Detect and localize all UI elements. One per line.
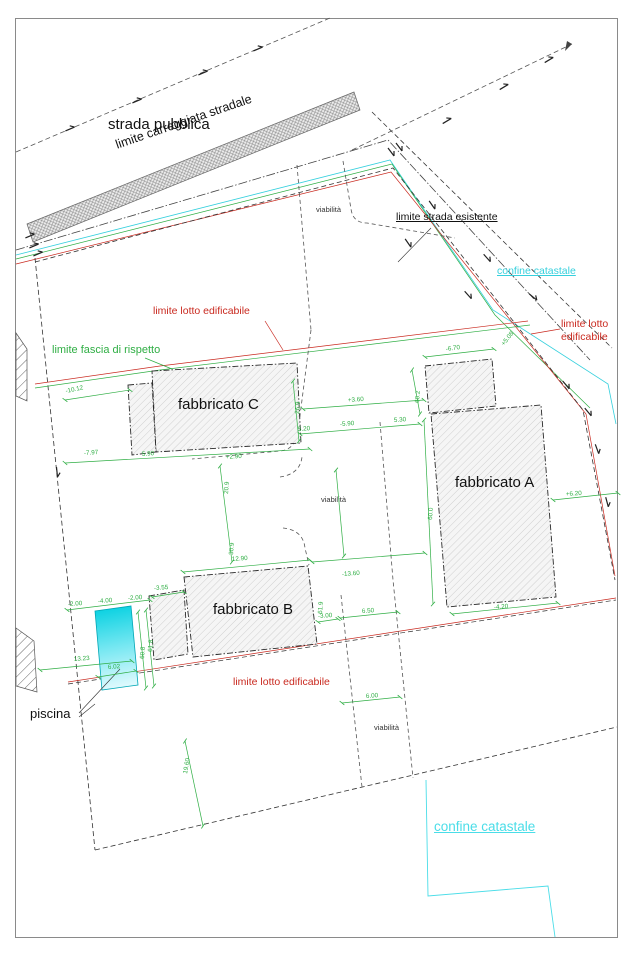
dimension-value: 5.90 bbox=[142, 450, 155, 458]
dimension-value: 60.8 bbox=[139, 646, 147, 659]
confine-catastale-line-bottom bbox=[426, 780, 555, 937]
survey-arrowhead bbox=[565, 41, 572, 51]
pool-label: piscina bbox=[30, 706, 70, 721]
dimension-value: 19.60 bbox=[182, 757, 192, 774]
buildable-lot-limit-label-right: limite lotto edificabile bbox=[561, 318, 608, 344]
dimension-value: -7.97 bbox=[84, 449, 99, 457]
road-centerline-dashdot bbox=[16, 140, 590, 360]
dimension-value: 6.50 bbox=[362, 607, 375, 615]
respect-strip-limit-label: limite fascia di rispetto bbox=[52, 344, 160, 356]
dimension-value: -4.20 bbox=[494, 603, 509, 611]
buildable-lot-limit-label-bottom: limite lotto edificabile bbox=[233, 676, 330, 688]
dimension-value: -2.00 bbox=[128, 594, 143, 602]
building-fabbricato-a bbox=[431, 405, 556, 607]
plaza-corner-sw bbox=[283, 528, 309, 565]
south-drive-west-edge bbox=[341, 595, 362, 787]
buildable-lot-limit-label-right-line2: edificabile bbox=[561, 331, 608, 344]
leader-strada-esistente bbox=[398, 228, 431, 262]
dimension-value: 60.2 bbox=[414, 390, 422, 403]
dimension-value: 60.0 bbox=[427, 507, 435, 520]
dimension-value: 6.00 bbox=[366, 692, 379, 700]
viabilita-label-bottom: viabilità bbox=[374, 723, 400, 732]
viabilita-label-top: viabilità bbox=[316, 205, 342, 214]
dimension-value: 6.02 bbox=[108, 663, 121, 671]
dimension-value: -2.00 bbox=[68, 600, 83, 608]
building-fabbricato-a-annex bbox=[425, 359, 496, 413]
pool bbox=[95, 606, 138, 690]
site-plan-svg: viabilità viabilità viabilità 5.90+2.902… bbox=[0, 0, 633, 960]
buildable-lot-limit-label-right-line1: limite lotto bbox=[561, 318, 608, 331]
dimension-value: -3.55 bbox=[154, 584, 169, 592]
dimension-value: 12.90 bbox=[232, 555, 249, 563]
site-plan: viabilità viabilità viabilità 5.90+2.902… bbox=[0, 0, 633, 960]
dimension-value: -4.00 bbox=[98, 597, 113, 605]
existing-road-limit-label: limite strada esistente bbox=[396, 211, 498, 223]
dimension-value: -10.12 bbox=[65, 384, 84, 395]
dimension-value: +3.60 bbox=[348, 396, 365, 404]
dimension-value: 26.9 bbox=[294, 401, 302, 414]
viabilita-label-center: viabilità bbox=[321, 495, 347, 504]
building-a-label: fabbricato A bbox=[455, 474, 534, 491]
cadastral-boundary-label-top: confine catastale bbox=[497, 265, 576, 277]
building-b-label: fabbricato B bbox=[213, 601, 293, 618]
dimension-value: 61.8 bbox=[147, 639, 155, 652]
leader-lotto-right bbox=[531, 329, 560, 334]
dimension-value: -6.70 bbox=[445, 344, 461, 353]
leader-piscina-1 bbox=[79, 669, 120, 713]
building-fabbricato-c-annex bbox=[128, 383, 156, 455]
building-c-label: fabbricato C bbox=[178, 396, 259, 413]
building-fabbricato-b-annex bbox=[149, 590, 188, 660]
cadastral-boundary-label-bottom: confine catastale bbox=[434, 819, 535, 834]
leader-lotto-left bbox=[265, 321, 283, 350]
dimension-value: -3.00 bbox=[318, 612, 333, 620]
dimension-value: -5.90 bbox=[340, 420, 355, 428]
dimension-value: +6.20 bbox=[566, 490, 583, 498]
dimension-value: 13.23 bbox=[74, 655, 91, 663]
plaza-corner-nw bbox=[280, 457, 302, 477]
lot-boundary-south bbox=[95, 727, 617, 850]
dimension-value: -13.60 bbox=[342, 570, 361, 578]
survey-line-northeast bbox=[352, 44, 572, 150]
dimension-value: 20.9 bbox=[223, 481, 231, 494]
dimension-value: 30.9 bbox=[228, 542, 236, 555]
buildable-lot-limit-label-left: limite lotto edificabile bbox=[153, 305, 250, 317]
west-wedge-lower bbox=[16, 628, 37, 692]
dimension-value: 5.30 bbox=[394, 416, 407, 424]
west-wedge-upper bbox=[16, 333, 27, 401]
dimension-value: 5.20 bbox=[298, 425, 311, 433]
dimension-value: +2.90 bbox=[226, 453, 243, 461]
